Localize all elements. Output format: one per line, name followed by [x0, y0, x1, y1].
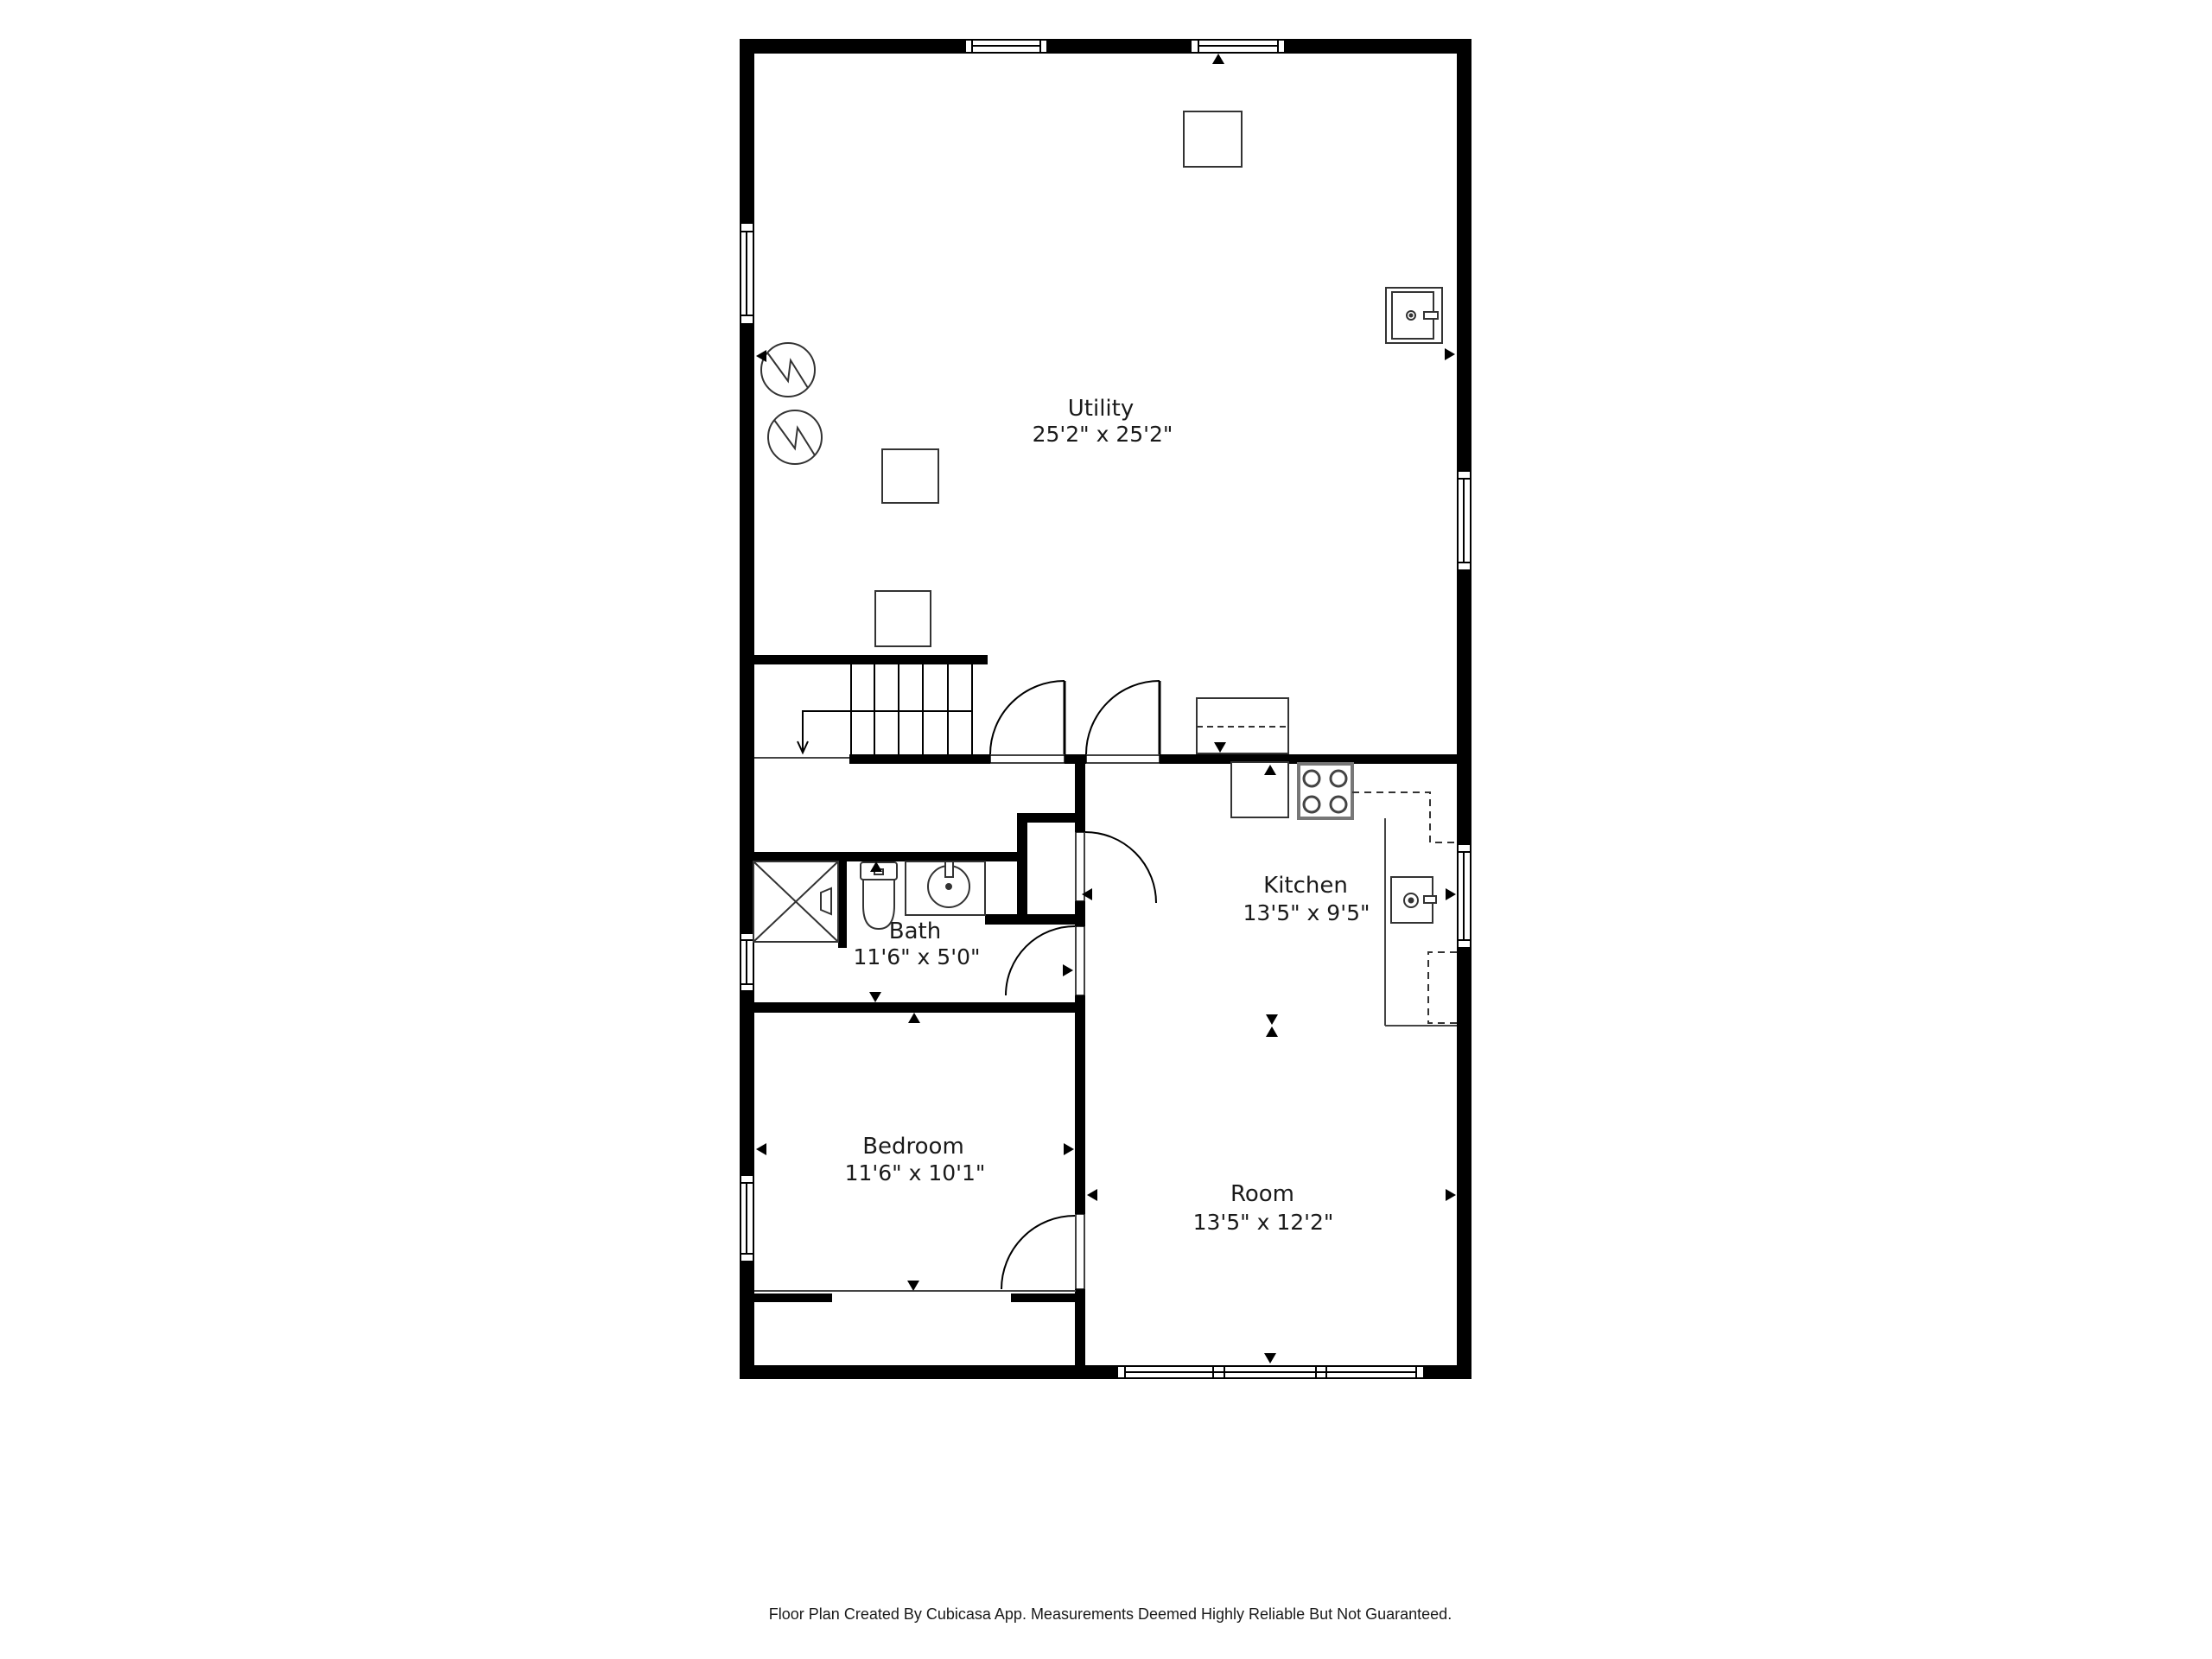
window-icon — [741, 933, 753, 991]
water-heater-icon — [761, 343, 815, 397]
room-boundary-lines — [754, 758, 1457, 1291]
washer-icon — [1386, 288, 1442, 343]
footer-disclaimer: Floor Plan Created By Cubicasa App. Meas… — [769, 1605, 1452, 1623]
bath-fixtures — [753, 861, 985, 942]
shower-icon — [753, 861, 838, 942]
opening-marker-icon — [1266, 1014, 1278, 1037]
stove-icon — [1299, 764, 1352, 818]
room-dims-utility: 25'2" x 25'2" — [1033, 422, 1173, 447]
door-icon — [1006, 926, 1084, 995]
arrow-down-icon — [869, 992, 881, 1002]
arrow-up-icon — [908, 1013, 920, 1023]
window-icon — [965, 40, 1047, 53]
arrow-down-icon — [1264, 1353, 1276, 1363]
window-icon — [741, 223, 753, 324]
stairs-icon — [798, 664, 972, 754]
room-label-utility: Utility — [1068, 396, 1134, 422]
refrigerator-icon — [1231, 762, 1288, 817]
room-label-room: Room — [1230, 1181, 1294, 1207]
dishwasher-icon — [1391, 877, 1436, 923]
arrow-right-icon — [1063, 964, 1073, 976]
room-label-kitchen: Kitchen — [1263, 873, 1348, 899]
arrow-left-icon — [756, 1143, 766, 1155]
room-labels: Utility 25'2" x 25'2" Kitchen 13'5" x 9'… — [845, 396, 1370, 1235]
room-dims-room: 13'5" x 12'2" — [1193, 1210, 1334, 1235]
storage-box-icon — [1184, 111, 1242, 167]
window-icon — [1191, 40, 1285, 53]
room-label-bath: Bath — [889, 918, 941, 944]
arrow-right-icon — [1446, 1189, 1456, 1201]
floor-plan-page: Utility 25'2" x 25'2" Kitchen 13'5" x 9'… — [0, 0, 2212, 1659]
door-icon — [1086, 681, 1160, 763]
room-dims-kitchen: 13'5" x 9'5" — [1243, 900, 1370, 925]
window-icon — [741, 1175, 753, 1262]
door-icon — [1001, 1214, 1084, 1289]
arrow-left-icon — [756, 350, 766, 362]
arrow-up-icon — [1212, 54, 1224, 64]
cabinet-icon — [1197, 698, 1288, 753]
water-heater-icon — [768, 410, 822, 464]
storage-box-icon — [882, 449, 938, 503]
arrow-left-icon — [1087, 1189, 1097, 1201]
room-dims-bedroom: 11'6" x 10'1" — [845, 1160, 986, 1185]
window-icon — [1458, 844, 1471, 948]
arrow-right-icon — [1445, 348, 1455, 360]
arrow-right-icon — [1064, 1143, 1074, 1155]
window-icon — [1117, 1366, 1424, 1378]
arrow-right-icon — [1446, 888, 1456, 900]
floor-plan-drawing: Utility 25'2" x 25'2" Kitchen 13'5" x 9'… — [0, 0, 2212, 1659]
arrow-down-icon — [907, 1281, 919, 1291]
bathroom-sink-icon — [906, 861, 985, 915]
storage-box-icon — [875, 591, 931, 646]
room-label-bedroom: Bedroom — [862, 1134, 964, 1160]
room-dims-bath: 11'6" x 5'0" — [854, 944, 981, 969]
door-icon — [990, 681, 1065, 763]
window-icon — [1458, 471, 1471, 570]
